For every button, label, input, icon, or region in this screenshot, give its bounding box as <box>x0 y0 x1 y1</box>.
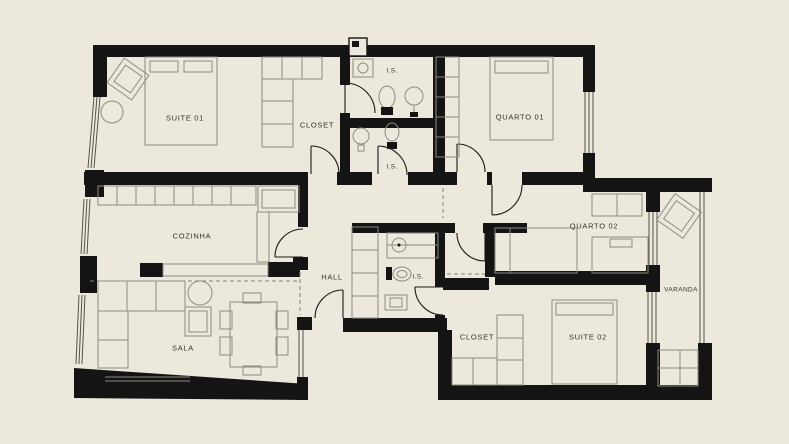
roof-duct <box>349 38 367 56</box>
bathroom3-sink <box>385 295 407 310</box>
kitchen-fridge <box>258 186 299 212</box>
quarto01-bed <box>490 57 553 140</box>
room-label-is-2: I.S. <box>386 164 397 171</box>
bathroom2-sink <box>353 128 369 151</box>
bathroom3-shower <box>387 233 438 258</box>
kitchen-counter <box>98 186 256 205</box>
varanda-tiles <box>658 350 698 386</box>
sala-armchair <box>185 307 211 336</box>
room-label-suite-02: SUITE 02 <box>569 333 607 342</box>
room-label-closet-suite-01: CLOSET <box>300 121 334 130</box>
room-label-closet-suite-02: CLOSET <box>460 333 494 342</box>
room-label-suite-01: SUITE 01 <box>166 114 204 123</box>
room-label-varanda: VARANDA <box>664 287 698 294</box>
room-label-quarto-02: QUARTO 02 <box>570 222 619 231</box>
windows-layer <box>76 92 704 377</box>
suite01-side-table <box>101 101 123 123</box>
room-label-sala: SALA <box>172 344 194 353</box>
kitchen-pass-counter <box>163 264 268 276</box>
suite02-closet <box>452 315 523 385</box>
bathroom1-sink <box>353 59 373 77</box>
bathroom1-toilet <box>379 86 395 115</box>
varanda-armchair <box>657 194 702 239</box>
suite01-bed <box>145 57 217 145</box>
sala-side-table <box>188 281 212 305</box>
quarto02-bed <box>495 228 577 273</box>
dashed-lines-layer <box>90 188 485 315</box>
room-label-cozinha: COZINHA <box>173 232 212 241</box>
quarto02-desk <box>592 237 648 273</box>
sala-dining-table <box>220 293 288 375</box>
furniture-layer <box>98 38 701 386</box>
hall-closet <box>352 227 378 318</box>
sala-sofa <box>98 281 185 368</box>
kitchen-side-counter <box>257 212 269 262</box>
bathroom3-toilet <box>386 267 411 281</box>
room-label-quarto-01: QUARTO 01 <box>496 113 545 122</box>
bathroom1-shower <box>405 87 423 117</box>
quarto02-wardrobe <box>592 194 642 216</box>
suite01-closet-shelves <box>262 57 322 147</box>
floor-plan-canvas: SUITE 01 CLOSET I.S. I.S. QUARTO 01 COZI… <box>0 0 789 444</box>
room-label-is-3: I.S. <box>412 274 423 281</box>
suite01-armchair <box>107 58 149 100</box>
suite02-bed <box>552 300 617 384</box>
room-label-hall: HALL <box>321 273 343 282</box>
room-label-is-1: I.S. <box>386 68 397 75</box>
